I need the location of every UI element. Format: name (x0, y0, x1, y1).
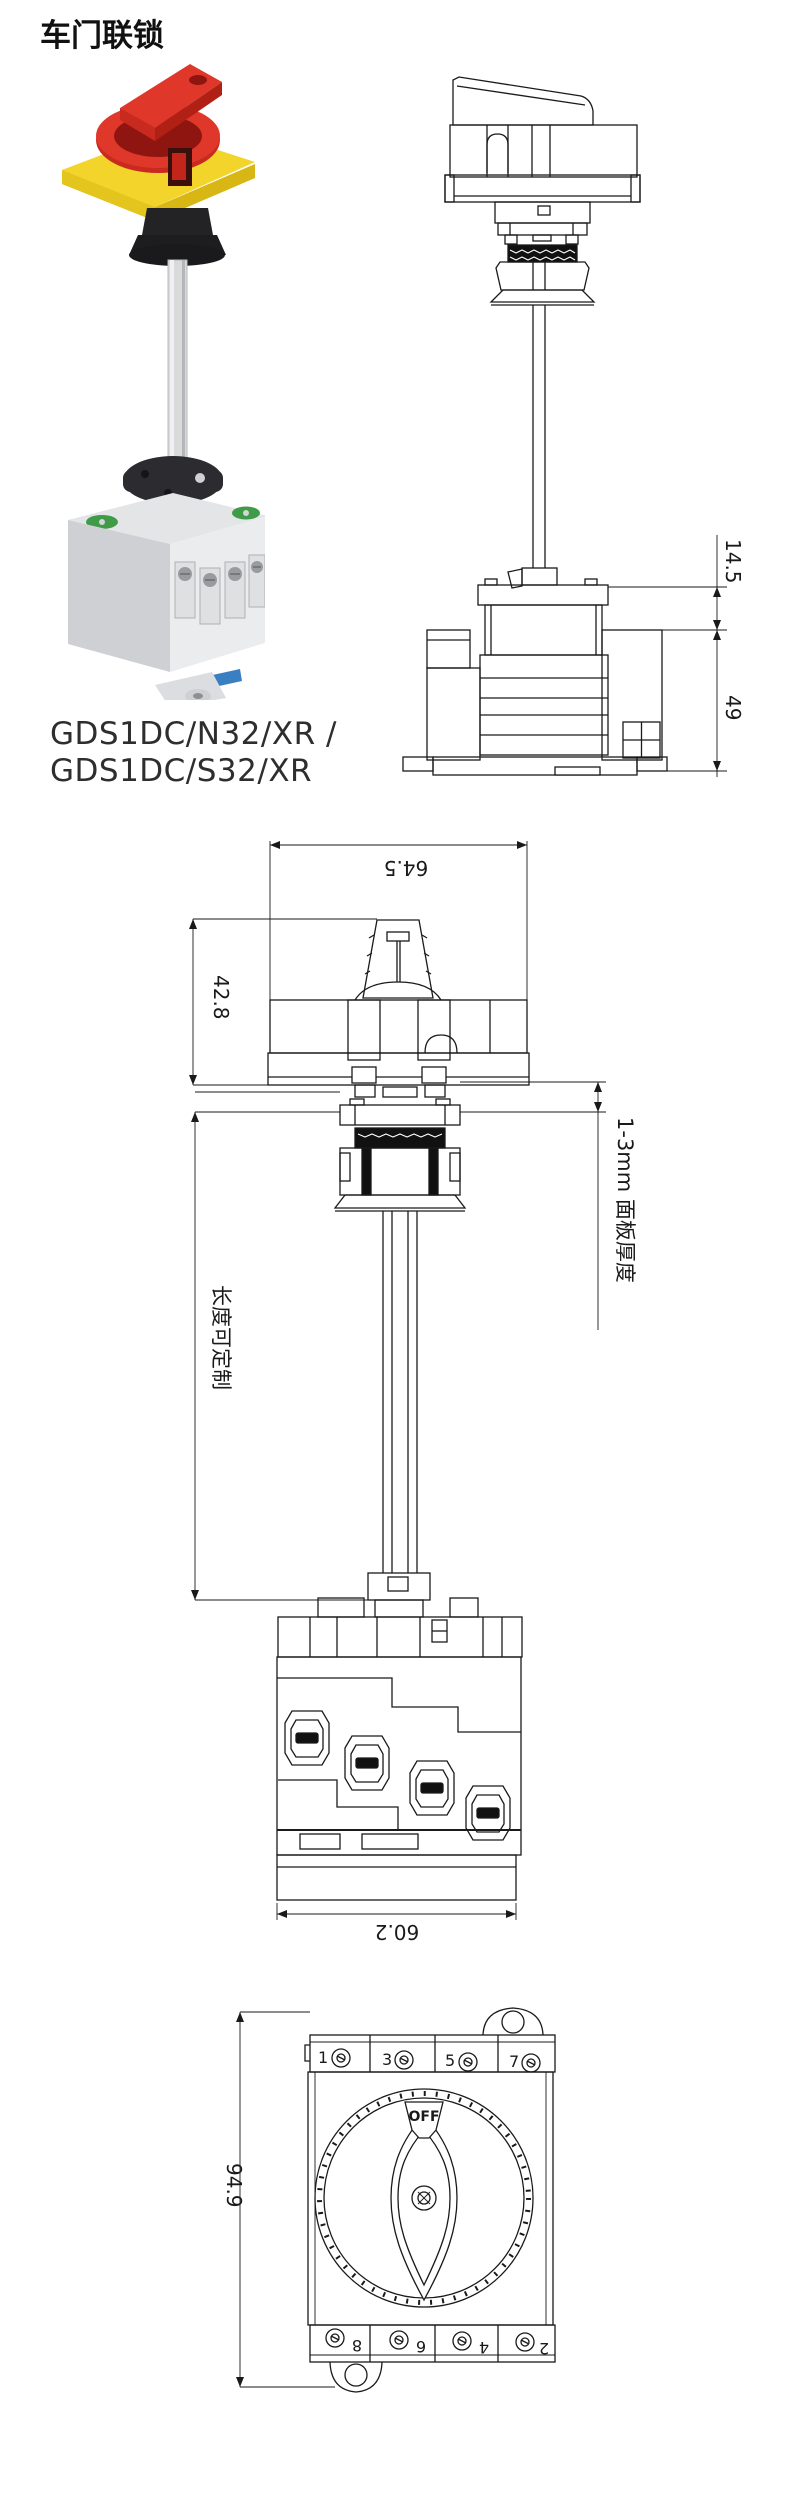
model-number: GDS1DC/N32/XR / GDS1DC/S32/XR (50, 716, 337, 790)
md-panel-note-label: 1-3mm 面板厚度 (613, 1117, 637, 1283)
md-handle-body (268, 1000, 529, 1085)
sv-dim-49: 49 (721, 695, 745, 720)
md-shaft (383, 1211, 417, 1573)
switch-body (68, 493, 265, 700)
body-left-face (68, 520, 170, 672)
fv-terminal-7: 7 (509, 2052, 519, 2071)
sv-dimensions (608, 535, 727, 777)
sv-collar (491, 202, 594, 305)
md-dim-body-width (277, 1903, 516, 1920)
product-photo (50, 50, 265, 700)
fv-terminal-2: 2 (539, 2339, 549, 2358)
shaft-rod (168, 260, 187, 460)
fv-off-label: OFF (408, 2109, 439, 2125)
fv-knob (391, 2102, 457, 2300)
fv-terminal-3: 3 (382, 2050, 392, 2069)
md-dim-height-label: 42.8 (209, 975, 233, 1020)
md-collar (335, 1085, 465, 1211)
page-title: 车门联锁 (40, 10, 164, 55)
sv-plate (445, 175, 640, 202)
handle-dimension-drawing: 64.5 42.8 长度可定制 1-3mm 面板厚度 60.2 (150, 835, 670, 1950)
md-dim-width-label: 64.5 (384, 856, 429, 880)
md-dim-panel (460, 1082, 606, 1330)
shaft-coupling (129, 208, 226, 266)
md-knob (355, 920, 441, 1000)
fv-dim-height (236, 2012, 335, 2387)
model-line-2: GDS1DC/S32/XR (50, 753, 337, 790)
catalog-page: 车门联锁 (0, 0, 790, 2500)
sv-body (403, 579, 667, 775)
fv-dim-height-label: 94.9 (222, 2163, 246, 2208)
fv-bottom-strip (310, 2325, 555, 2362)
side-view-drawing: 14.5 49 (395, 55, 755, 800)
md-coupling (368, 1573, 430, 1617)
md-switch-body (277, 1598, 522, 1900)
sv-handle-base (450, 125, 637, 177)
fv-terminal-6: 6 (416, 2337, 426, 2356)
model-line-1: GDS1DC/N32/XR / (50, 716, 337, 753)
sv-dim-14-5: 14.5 (721, 539, 745, 584)
front-view-drawing: 94.9 OFF 1 3 5 7 8 6 4 2 (185, 2000, 585, 2480)
fv-terminal-1: 1 (318, 2048, 328, 2067)
sv-shaft (533, 305, 545, 568)
sv-handle (453, 77, 593, 125)
fv-terminal-4: 4 (479, 2338, 489, 2357)
fv-terminal-8: 8 (352, 2336, 362, 2355)
disc-screw (195, 473, 205, 483)
md-length-note-label: 长度可定制 (209, 1285, 233, 1390)
md-dim-body-width-label: 60.2 (375, 1920, 420, 1944)
knob-hole (189, 75, 207, 85)
fv-terminal-5: 5 (445, 2051, 455, 2070)
